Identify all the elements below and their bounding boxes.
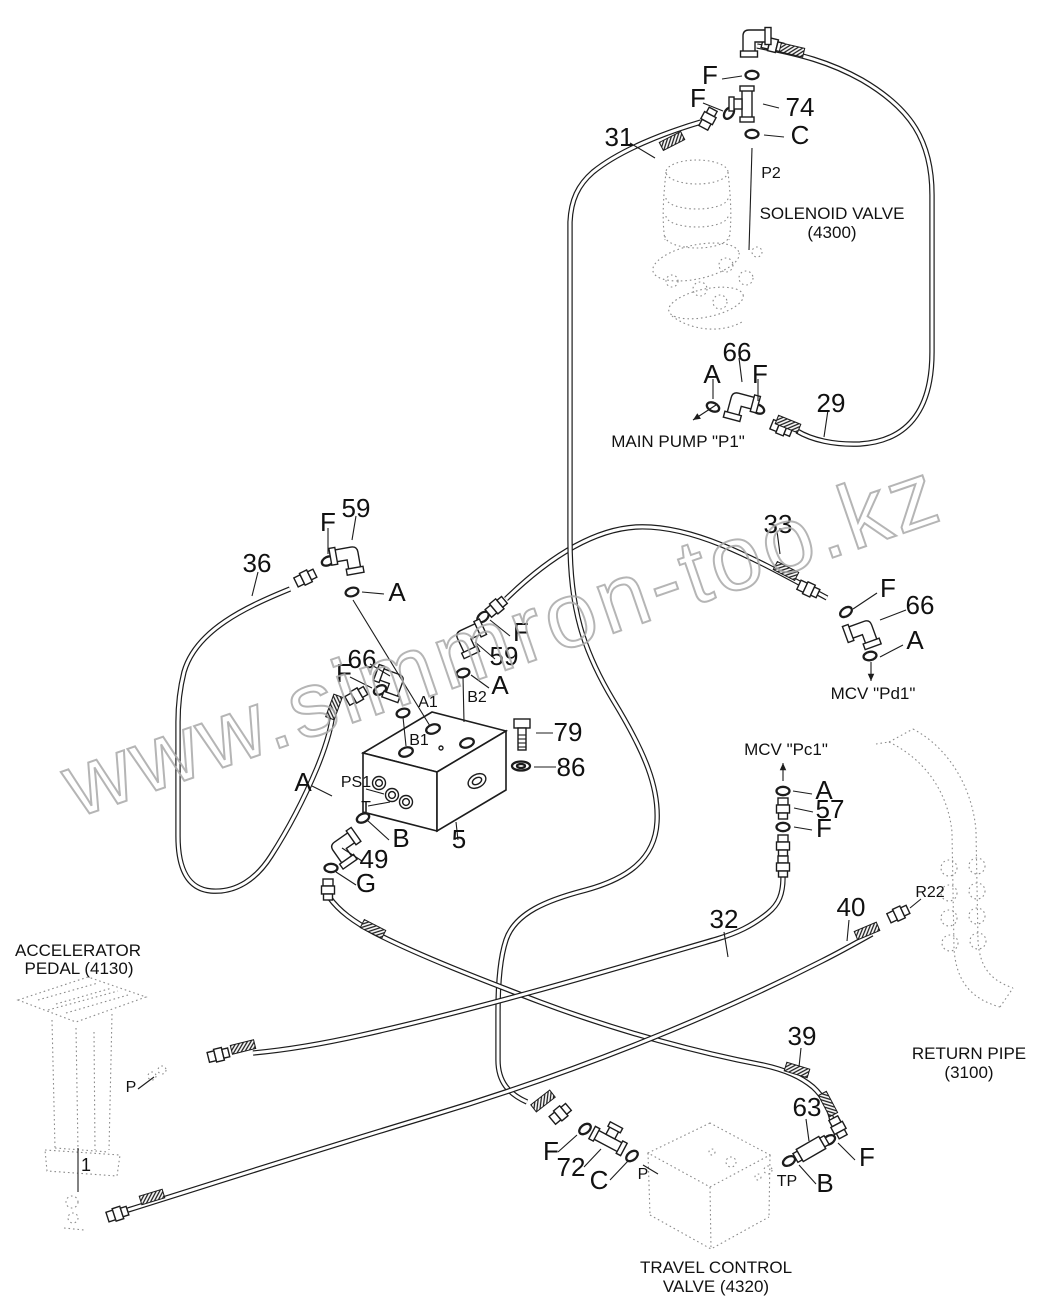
arrow-head — [868, 674, 875, 681]
callout-29: 29 — [817, 388, 846, 418]
mesh-fitting — [531, 1090, 555, 1112]
arrow-head — [693, 413, 701, 420]
travel-control-valve-ghost — [648, 1123, 772, 1249]
nut-fitting — [322, 879, 335, 900]
nut-fitting — [105, 1204, 129, 1223]
leader-line — [764, 135, 784, 137]
oring-fitting — [746, 130, 759, 138]
mesh-fitting — [360, 920, 385, 939]
callout-a-pd1: A — [906, 625, 924, 655]
nut-fitting — [777, 798, 790, 819]
oring-fitting — [325, 864, 338, 872]
elbow-fitting — [723, 389, 760, 425]
callout-a-p1: A — [703, 359, 721, 389]
leader-line — [749, 148, 752, 250]
callout-ps1-port: PS1 — [341, 774, 371, 791]
callout-r22-port: R22 — [915, 884, 944, 901]
hose-29 — [757, 46, 932, 444]
leader-line — [880, 610, 906, 620]
callout-c-72: C — [590, 1165, 609, 1195]
callout-p2: P2 — [761, 165, 781, 182]
callout-63: 63 — [793, 1092, 822, 1122]
callout-mcv-pd1-name: MCV "Pd1" — [831, 684, 916, 703]
callout-p-pedal: P — [126, 1079, 137, 1096]
callout-g: G — [356, 868, 376, 898]
callout-return-pipe-code: (3100) — [944, 1063, 993, 1082]
hose-39-core — [329, 897, 832, 1121]
callout-t-port: T — [361, 799, 371, 816]
leader-line — [312, 786, 332, 796]
callout-b1-port: B1 — [409, 732, 429, 749]
leader-line — [806, 1119, 809, 1141]
accelerator-pedal-ghost — [18, 977, 166, 1230]
arrow-head — [780, 763, 787, 770]
oring-fitting — [838, 605, 853, 619]
callout-accelerator-pedal-code: PEDAL (4130) — [25, 959, 134, 978]
callout-f-tee74: F — [690, 83, 706, 113]
callout-59-top: 59 — [342, 493, 371, 523]
leader-line — [610, 1161, 628, 1180]
elbow-fitting — [329, 543, 364, 577]
nut-fitting — [293, 567, 318, 588]
tee-fitting — [589, 1117, 633, 1156]
callout-5: 5 — [452, 824, 466, 854]
hydraulic-piping-diagram: FF74C31P266AF2959F36A33F66A66FA1F59AB2B1… — [0, 0, 1053, 1314]
oring-fitting — [777, 823, 790, 831]
elbow-fitting — [741, 28, 772, 58]
hose-29-core — [757, 46, 932, 444]
leader-line — [793, 791, 812, 794]
hose-39 — [329, 897, 832, 1121]
callout-b-t: B — [392, 823, 409, 853]
callout-79: 79 — [554, 717, 583, 747]
solenoid-valve-ghost — [649, 160, 762, 329]
callout-return-pipe-name: RETURN PIPE — [912, 1044, 1026, 1063]
oring-fitting — [345, 586, 360, 597]
oring-fitting — [863, 651, 877, 662]
oring-fitting — [624, 1149, 639, 1164]
callout-f-pc1: F — [816, 813, 832, 843]
mesh-fitting — [230, 1040, 255, 1055]
callout-86: 86 — [557, 752, 586, 782]
callout-travel-valve-code: VALVE (4320) — [663, 1277, 769, 1296]
nut-fitting — [886, 903, 911, 924]
callout-f-p1: F — [752, 359, 768, 389]
nut-fitting — [207, 1046, 231, 1064]
oring-fitting — [746, 71, 759, 79]
callout-main-pump-name: MAIN PUMP "P1" — [611, 432, 745, 451]
callout-c-tee74: C — [791, 120, 810, 150]
bolt-fitting — [514, 719, 530, 750]
leader-line — [336, 872, 356, 885]
callout-1: 1 — [81, 1155, 91, 1175]
mesh-fitting — [779, 43, 804, 57]
return-pipe-ghost — [876, 729, 1013, 1007]
nut-fitting — [548, 1102, 572, 1125]
leader-line — [847, 920, 849, 941]
leader-line — [794, 808, 813, 812]
washer-fitting — [512, 762, 530, 771]
callout-mcv-pc1-name: MCV "Pc1" — [744, 740, 828, 759]
s63-fitting — [792, 1134, 830, 1164]
callout-p-72: P — [638, 1166, 649, 1183]
callout-solenoid-valve-name: SOLENOID VALVE — [760, 204, 905, 223]
callout-40: 40 — [837, 892, 866, 922]
leader-line — [794, 827, 812, 830]
leader-line — [853, 593, 877, 609]
leader-line — [362, 592, 384, 594]
callout-39: 39 — [788, 1021, 817, 1051]
callout-f-59top: F — [320, 507, 336, 537]
callout-66-p1: 66 — [723, 337, 752, 367]
nut-fitting — [777, 835, 790, 856]
leader-line — [722, 76, 742, 79]
oring-fitting — [577, 1122, 592, 1137]
callout-b-tp: B — [816, 1168, 833, 1198]
callout-74: 74 — [786, 92, 815, 122]
leader-line — [138, 1077, 154, 1089]
callout-solenoid-valve-code: (4300) — [807, 223, 856, 242]
callout-31: 31 — [605, 122, 634, 152]
callout-72: 72 — [557, 1152, 586, 1182]
leader-line — [558, 1135, 577, 1152]
callout-f-pd1: F — [880, 573, 896, 603]
leader-line — [838, 1143, 855, 1160]
callout-a-ps1: A — [294, 767, 312, 797]
callout-accelerator-pedal-name: ACCELERATOR — [15, 941, 141, 960]
callout-66-pd1: 66 — [906, 590, 935, 620]
callout-f-tp: F — [859, 1142, 875, 1172]
callout-tp-port: TP — [777, 1173, 797, 1190]
callout-36: 36 — [243, 548, 272, 578]
leader-line — [880, 645, 903, 657]
leader-line — [799, 1165, 816, 1184]
leader-line — [367, 820, 389, 840]
nut-fitting — [777, 856, 790, 877]
leader-line — [763, 104, 779, 108]
elbow-fitting — [842, 616, 881, 654]
parts-diagram-page: FF74C31P266AF2959F36A33F66A66FA1F59AB2B1… — [0, 0, 1053, 1314]
oring-fitting — [777, 787, 790, 795]
callout-32: 32 — [710, 904, 739, 934]
callout-a-59top: A — [388, 577, 406, 607]
callout-travel-valve-name: TRAVEL CONTROL — [640, 1258, 792, 1277]
